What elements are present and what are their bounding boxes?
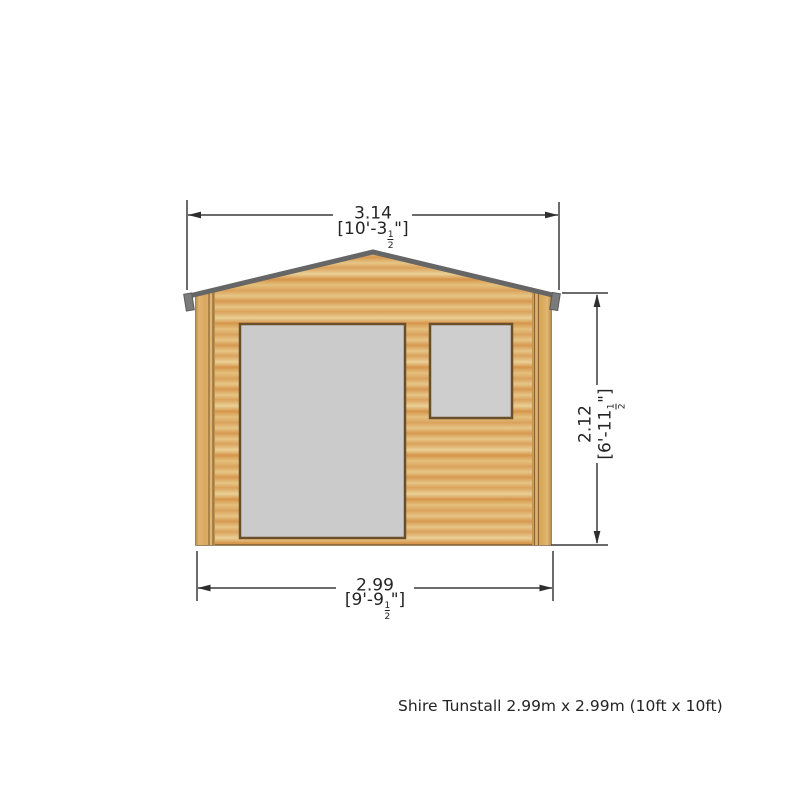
shed-front-elevation — [0, 0, 800, 800]
fraction: 12 — [607, 403, 627, 409]
arrow-right-icon — [540, 585, 553, 592]
dimension-overall-width-imperial: [10'-312"] — [337, 220, 408, 250]
arrow-left-icon — [198, 585, 211, 592]
fraction-numerator: 1 — [388, 230, 394, 239]
fraction-numerator: 1 — [607, 403, 616, 409]
fraction-numerator: 1 — [384, 601, 390, 610]
imperial-suffix: "] — [391, 590, 405, 610]
fraction: 12 — [388, 230, 394, 250]
window — [430, 324, 512, 418]
fraction-denominator: 2 — [384, 610, 390, 621]
dimension-height-label: 2.12 [6'-1112"] — [576, 388, 627, 459]
arrow-up-icon — [594, 294, 601, 307]
fraction-denominator: 2 — [616, 403, 627, 409]
door — [240, 324, 405, 538]
imperial-prefix: [10'-3 — [337, 219, 387, 239]
arrow-right-icon — [545, 212, 558, 219]
dimension-height-metric: 2.12 — [576, 388, 596, 459]
arrow-left-icon — [188, 212, 201, 219]
fraction: 12 — [384, 601, 390, 621]
dimension-height-imperial: [6'-1112"] — [596, 388, 627, 459]
metric-value: 2.12 — [576, 405, 596, 443]
dimension-base-width-imperial: [9'-912"] — [345, 591, 405, 621]
imperial-suffix: "] — [596, 388, 616, 402]
product-caption: Shire Tunstall 2.99m x 2.99m (10ft x 10f… — [398, 697, 723, 715]
imperial-prefix: [9'-9 — [345, 590, 384, 610]
imperial-suffix: "] — [394, 219, 408, 239]
corner-post-left — [196, 288, 215, 546]
technical-drawing-page: 3.14 [10'-312"] 2.12 [6'-1112"] 2.99 [9'… — [0, 0, 800, 800]
fraction-denominator: 2 — [388, 239, 394, 250]
arrow-down-icon — [594, 531, 601, 544]
imperial-prefix: [6'-11 — [596, 410, 616, 460]
